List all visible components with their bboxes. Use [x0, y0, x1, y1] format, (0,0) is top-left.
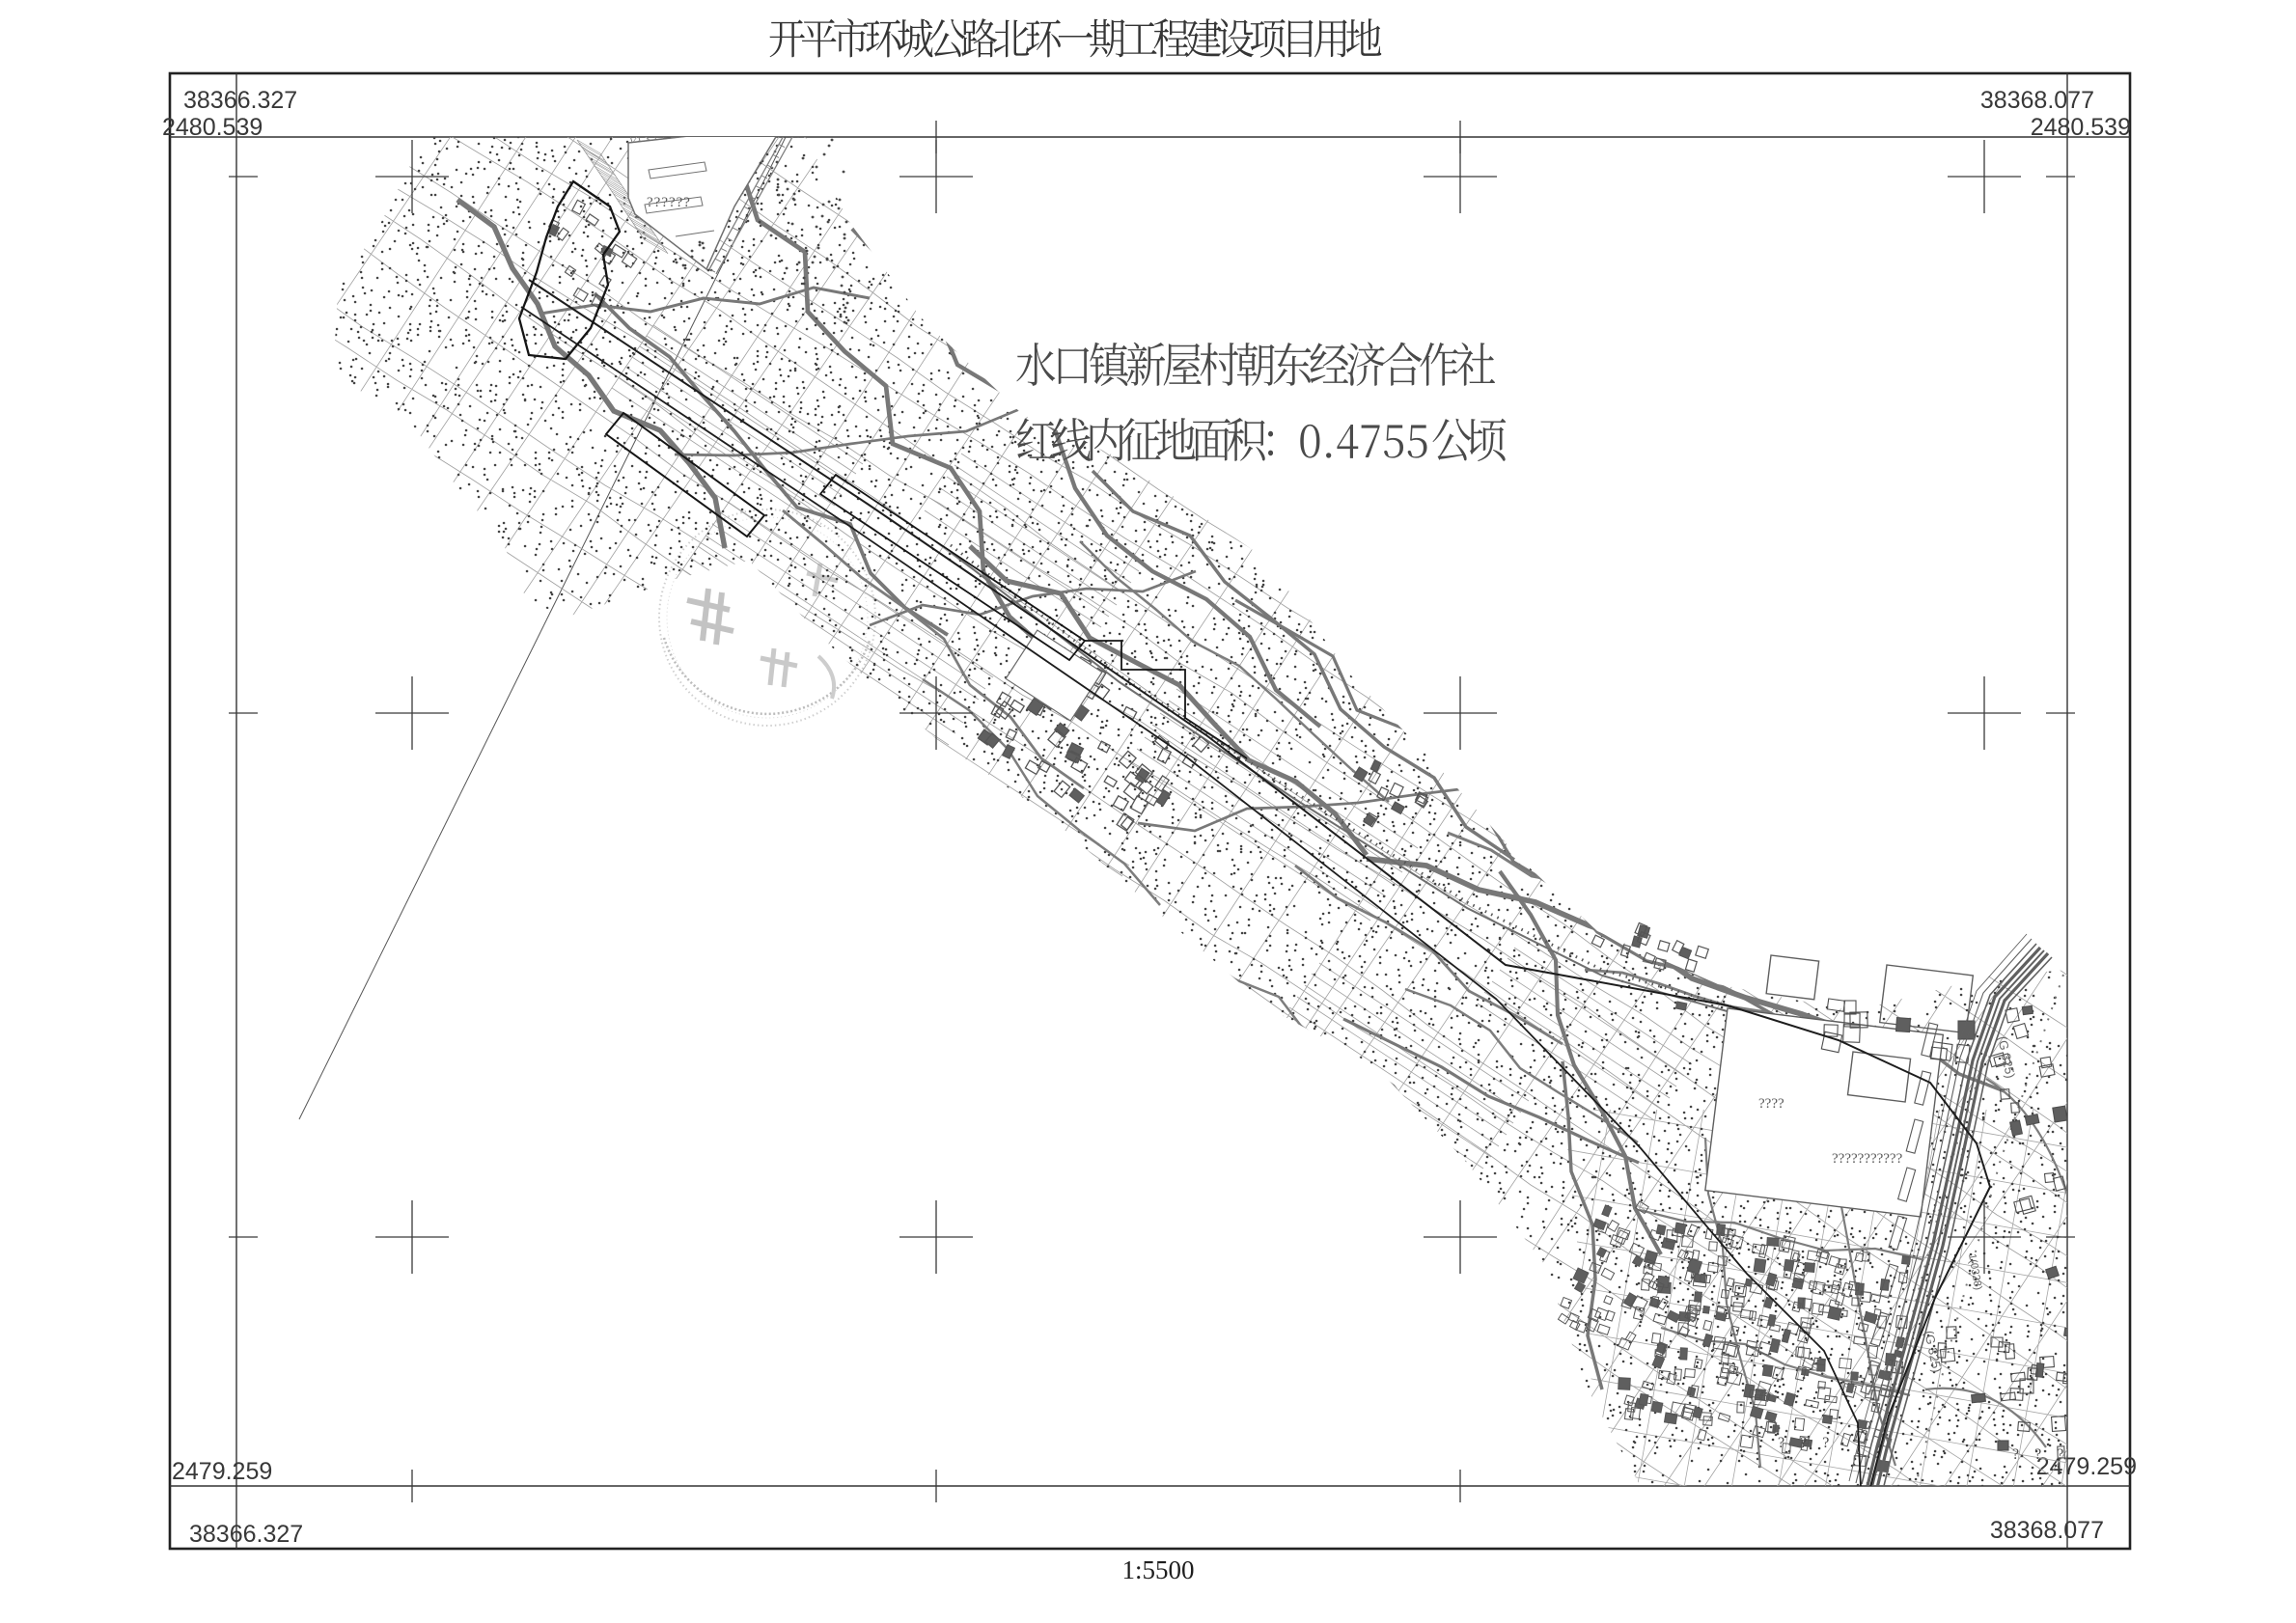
svg-text:38368.077: 38368.077 — [1990, 1517, 2104, 1544]
svg-text:2480.539: 2480.539 — [2031, 114, 2131, 141]
svg-text:????: ???? — [1758, 1096, 1784, 1112]
svg-text:??????: ?????? — [647, 195, 691, 210]
svg-text:38366.327: 38366.327 — [183, 87, 297, 114]
svg-text:???????????: ??????????? — [1832, 1151, 1903, 1167]
svg-text:38366.327: 38366.327 — [189, 1521, 303, 1548]
svg-text:38368.077: 38368.077 — [1980, 87, 2094, 114]
svg-text:? ? ?: ? ? ? — [1778, 1435, 1835, 1451]
svg-text:1:5500: 1:5500 — [1121, 1555, 1194, 1584]
svg-text:2479.259: 2479.259 — [172, 1458, 272, 1485]
svg-text:? ? ?: ? ? ? — [2012, 1446, 2069, 1463]
svg-text:2480.539: 2480.539 — [162, 114, 263, 141]
